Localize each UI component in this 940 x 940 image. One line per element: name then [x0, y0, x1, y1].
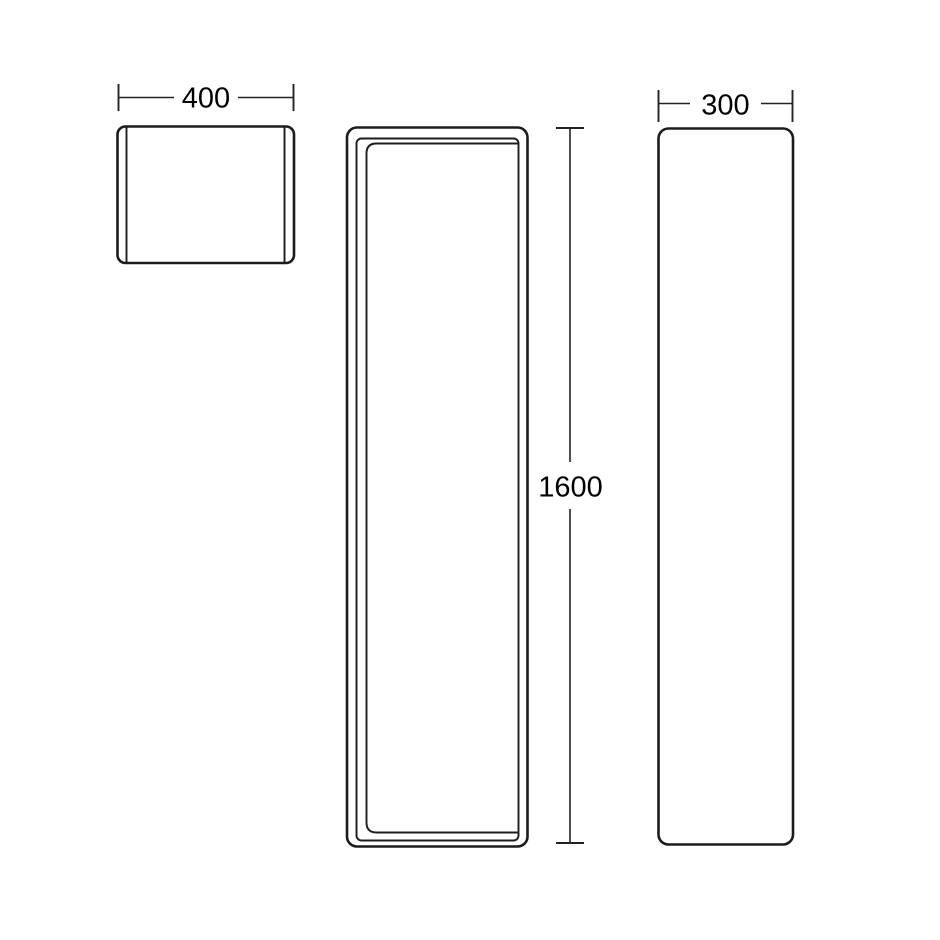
- width-dimension-400: 400: [119, 83, 294, 115]
- width-dimension-300: 300: [659, 90, 793, 123]
- dimension-label-300: 300: [701, 90, 749, 122]
- side-view-outline: [659, 129, 794, 845]
- drawing-svg: 400 1600 300: [0, 0, 940, 940]
- side-view: 300: [659, 90, 794, 845]
- dimension-label-1600: 1600: [538, 472, 603, 504]
- technical-drawing-canvas: 400 1600 300: [0, 0, 940, 940]
- front-view: 1600: [347, 128, 603, 847]
- dimension-label-400: 400: [182, 83, 230, 115]
- top-view-plan: 400: [118, 83, 295, 264]
- front-view-outline: [347, 128, 528, 847]
- height-dimension-1600: 1600: [538, 128, 603, 843]
- top-view-outline: [118, 127, 295, 264]
